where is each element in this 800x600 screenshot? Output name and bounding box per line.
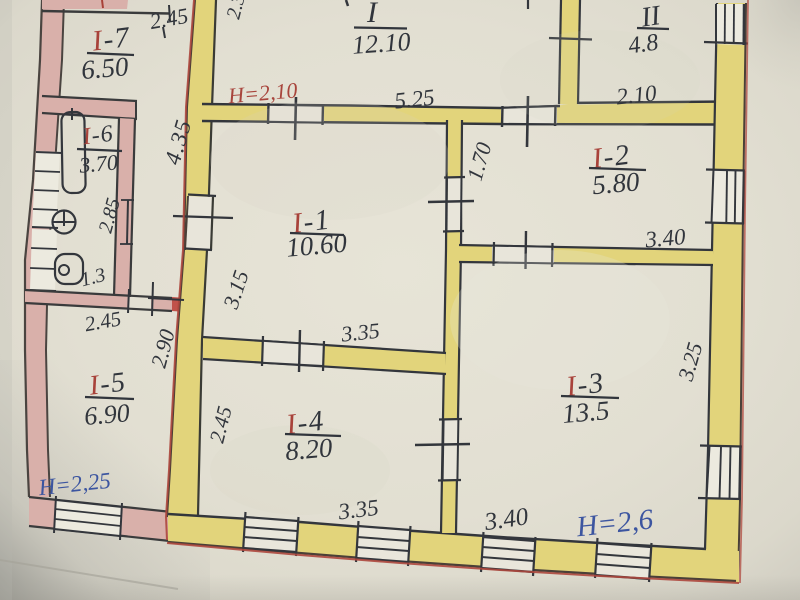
- svg-text:6.90: 6.90: [83, 398, 131, 431]
- svg-text:3.35: 3.35: [339, 318, 381, 347]
- svg-text:12.10: 12.10: [351, 27, 411, 60]
- svg-text:3.35: 3.35: [336, 495, 380, 525]
- svg-text:5.80: 5.80: [591, 166, 641, 200]
- svg-text:13.5: 13.5: [561, 395, 611, 429]
- svg-text:3.40: 3.40: [643, 224, 687, 253]
- svg-text:3.70: 3.70: [77, 149, 119, 177]
- svg-text:5.25: 5.25: [393, 85, 436, 114]
- svg-text:8.20: 8.20: [284, 432, 334, 466]
- svg-text:4.8: 4.8: [627, 30, 660, 60]
- svg-text:I-6: I-6: [80, 121, 115, 151]
- svg-text:2.10: 2.10: [615, 80, 658, 109]
- svg-text:10.60: 10.60: [285, 228, 349, 263]
- svg-text:6.50: 6.50: [80, 51, 130, 85]
